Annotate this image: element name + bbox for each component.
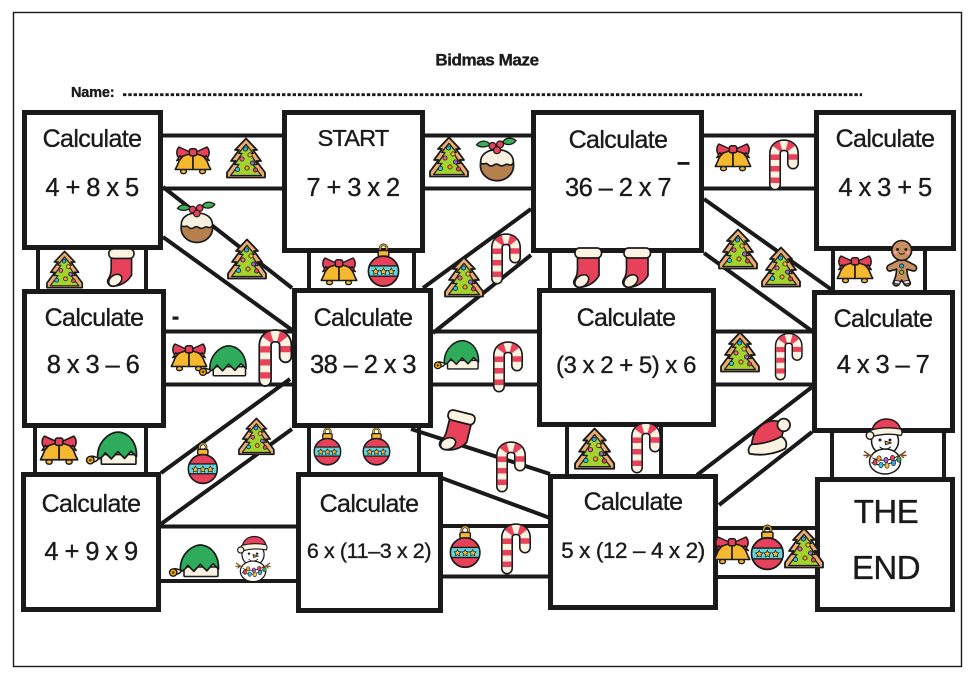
svg-text:Name:: Name:: [71, 85, 114, 101]
svg-text:4 + 8 x 5: 4 + 8 x 5: [45, 174, 139, 202]
svg-text:Calculate: Calculate: [320, 490, 419, 518]
svg-text:Calculate: Calculate: [43, 125, 142, 153]
svg-text:Calculate: Calculate: [569, 126, 668, 154]
svg-text:Calculate: Calculate: [834, 305, 933, 333]
svg-text:THE: THE: [854, 493, 919, 530]
svg-text:8 x 3 – 6: 8 x 3 – 6: [47, 351, 140, 379]
svg-text:6 x (11–3 x 2): 6 x (11–3 x 2): [307, 539, 431, 563]
svg-text:36 – 2 x 7: 36 – 2 x 7: [565, 174, 671, 202]
svg-text:Bidmas Maze: Bidmas Maze: [435, 51, 538, 70]
svg-text:(3 x 2 + 5) x 6: (3 x 2 + 5) x 6: [556, 352, 696, 379]
svg-text:END: END: [852, 549, 920, 586]
svg-text:Calculate: Calculate: [45, 304, 144, 332]
svg-text:Calculate: Calculate: [836, 125, 935, 153]
svg-text:Calculate: Calculate: [42, 490, 141, 518]
svg-text:Calculate: Calculate: [314, 304, 413, 332]
svg-text:5 x (12 – 4 x 2): 5 x (12 – 4 x 2): [561, 538, 705, 563]
svg-text:4 x 3 + 5: 4 x 3 + 5: [838, 174, 932, 202]
svg-text:4 x 3 – 7: 4 x 3 – 7: [837, 351, 929, 379]
svg-text:Calculate: Calculate: [584, 488, 683, 516]
svg-text:Calculate: Calculate: [577, 304, 676, 332]
svg-text:START: START: [318, 125, 389, 151]
svg-text:7 + 3 x 2: 7 + 3 x 2: [306, 174, 399, 202]
svg-text:4 + 9 x 9: 4 + 9 x 9: [44, 538, 137, 566]
svg-text:38 – 2 x 3: 38 – 2 x 3: [310, 351, 416, 379]
